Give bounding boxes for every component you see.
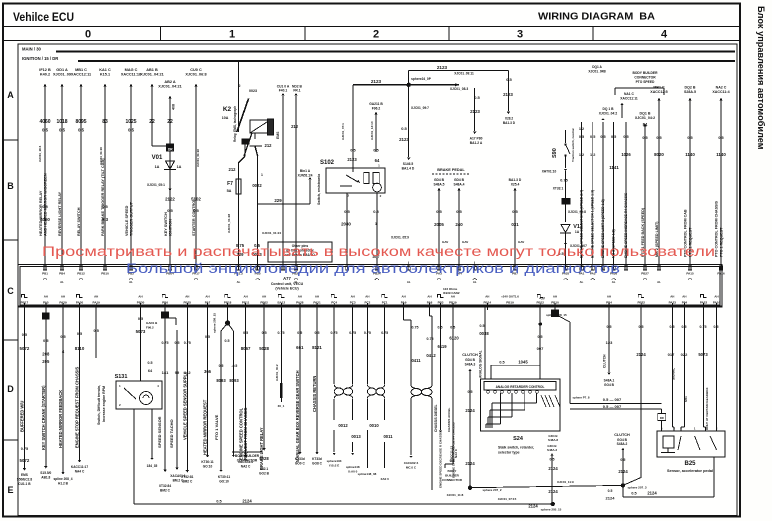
svg-text:B: B [7,181,14,191]
svg-text:CU0 C: CU0 C [190,68,202,72]
svg-text:2123: 2123 [371,79,382,84]
svg-text:XJC01_01:28: XJC01_01:28 [227,214,231,233]
svg-text:1140: 1140 [685,152,695,157]
svg-text:Stalk switch, retarder,: Stalk switch, retarder, [498,446,534,450]
svg-text:2123: 2123 [399,137,409,142]
svg-text:141: 141 [162,370,169,375]
svg-text:FR.1: FR.1 [293,89,300,93]
svg-text:CLUTCH: CLUTCH [462,353,478,357]
svg-text:XJC01_01:16: XJC01_01:16 [99,147,103,165]
svg-text:CONNECTOR: CONNECTOR [442,478,463,482]
svg-text:0.75: 0.75 [21,447,28,451]
svg-text:64: 64 [375,158,380,163]
svg-text:P84: P84 [682,301,688,305]
svg-text:Блок управления автомобилем: Блок управления автомобилем [756,6,766,150]
svg-text:VEHICLE SPEED: VEHICLE SPEED [125,205,129,236]
svg-text:SPEED SENSOR: SPEED SENSOR [157,416,162,448]
svg-text:0.5: 0.5 [216,500,221,504]
svg-text:sphere P7_8: sphere P7_8 [572,396,589,400]
svg-text:XA0 0: XA0 0 [381,477,390,481]
svg-text:4: 4 [661,29,668,41]
svg-text:PC4: PC4 [331,301,337,305]
svg-text:1045: 1045 [518,360,528,365]
svg-text:GO2 B: GO2 B [259,472,270,476]
svg-text:HEATED MIRROR FEEDBACK: HEATED MIRROR FEEDBACK [58,390,63,448]
svg-text:1A: 1A [155,165,160,169]
svg-text:BUILDER: BUILDER [445,474,460,478]
svg-text:S24: S24 [513,436,524,442]
svg-text:PB19: PB19 [449,301,457,305]
svg-text:PA16: PA16 [717,272,725,276]
svg-text:spline 208_4: spline 208_4 [54,477,73,481]
svg-text:AH: AH [138,295,142,299]
svg-text:REVERSE LIGHT RELAY: REVERSE LIGHT RELAY [58,191,62,236]
svg-text:0.5: 0.5 [22,333,27,337]
svg-text:MAIN / 30: MAIN / 30 [22,47,42,52]
svg-text:KT30:11: KT30:11 [218,475,230,479]
svg-text:A17 P80: A17 P80 [470,137,483,141]
svg-text:0.5: 0.5 [718,136,723,140]
svg-text:GD4 B: GD4 B [454,178,465,182]
svg-text:0.5: 0.5 [687,136,692,140]
svg-text:10A: 10A [222,116,229,120]
svg-text:spline148_08: spline148_08 [358,472,377,476]
svg-text:0.75: 0.75 [381,331,388,335]
svg-text:Bin1 A: Bin1 A [300,169,311,173]
svg-text:0.5: 0.5 [480,324,485,328]
svg-text:PC3: PC3 [350,301,356,305]
svg-text:0.5: 0.5 [42,128,48,133]
svg-text:DQ 1 B: DQ 1 B [603,107,615,111]
svg-text:PA22: PA22 [700,301,708,305]
svg-text:2124: 2124 [548,466,558,471]
svg-text:S48A.4: S48A.4 [454,183,465,187]
svg-text:2124: 2124 [242,499,252,504]
svg-text:EMS: EMS [21,473,28,477]
svg-text:AH: AH [185,295,189,299]
svg-text:PTO 1 VALVE: PTO 1 VALVE [214,414,219,440]
svg-text:BA1.4 D: BA1.4 D [402,167,415,171]
svg-text:0.5: 0.5 [550,458,555,462]
svg-text:AH: AH [670,295,674,299]
svg-text:1 2: 1 2 [579,153,584,157]
svg-text:GO8 C: GO8 C [312,462,323,466]
svg-text:XJC01_0F.2: XJC01_0F.2 [275,364,279,381]
svg-text:0.75: 0.75 [349,331,356,335]
svg-text:F40.1: F40.1 [279,89,288,93]
svg-text:0.5: 0.5 [401,126,407,131]
svg-text:1026: 1026 [621,152,631,157]
svg-text:S48A.2: S48A.2 [617,442,628,446]
svg-text:KT33d: KT33d [312,457,322,461]
svg-text:2: 2 [373,29,379,41]
svg-text:0.5: 0.5 [128,128,134,133]
svg-text:0022: 0022 [252,183,262,188]
svg-text:0.5: 0.5 [512,209,518,214]
svg-text:0411: 0411 [411,358,421,363]
svg-text:XJN51:24: XJN51:24 [298,174,313,178]
svg-text:031: 031 [511,222,519,227]
svg-text:GO:10: GO:10 [203,465,213,469]
svg-text:0.5 — 007: 0.5 — 007 [603,397,622,402]
svg-text:BA12: BA12 [277,301,285,305]
svg-text:PA15: PA15 [686,272,694,276]
svg-text:XHT01:10: XHT01:10 [542,170,557,174]
svg-text:XJC01_11:9: XJC01_11:9 [557,480,574,484]
svg-text:GO:10: GO:10 [219,480,229,484]
svg-text:A77: A77 [283,276,291,281]
svg-text:S146.5: S146.5 [403,162,414,166]
svg-text:0.5: 0.5 [611,135,616,139]
svg-text:BRAKE LIGHT RELAY: BRAKE LIGHT RELAY [259,427,264,470]
svg-text:PB11: PB11 [242,301,250,305]
svg-text:AL: AL [657,280,661,284]
svg-text:0.5: 0.5 [436,209,442,214]
svg-text:5028: 5028 [259,346,269,351]
svg-text:0.5: 0.5 [608,489,613,493]
svg-text:PA28: PA28 [296,301,304,305]
svg-text:PB4: PB4 [606,301,612,305]
svg-text:5A: 5A [227,189,232,193]
svg-text:S131: S131 [115,374,128,380]
svg-text:K40.2: K40.2 [40,73,50,77]
svg-text:-0.5: -0.5 [231,364,237,368]
svg-text:XJC01_04:21: XJC01_04:21 [158,85,181,89]
svg-text:PB14: PB14 [484,301,492,305]
svg-text:ENGINE STOP REQUEST FROM CHASS: ENGINE STOP REQUEST FROM CHASSIS [75,366,80,448]
svg-text:AH: AH [262,295,266,299]
svg-text:212: 212 [291,124,299,129]
svg-text:BA1.3 D: BA1.3 D [503,121,516,125]
svg-text:AH: AH [682,295,686,299]
svg-text:0.5: 0.5 [175,341,180,345]
svg-text:XJC01_05:9: XJC01_05:9 [391,236,409,240]
svg-text:AH: AH [553,295,557,299]
svg-text:BODY BUILDER: BODY BUILDER [632,71,658,75]
svg-text:AL: AL [580,280,584,284]
svg-text:DQ2 B: DQ2 B [685,85,696,89]
svg-text:PB10: PB10 [101,272,109,276]
svg-text:XJC01_09: XJC01_09 [53,73,71,77]
svg-text:VEHICLE SPEED SENSOR SUPPLY: VEHICLE SPEED SENSOR SUPPLY [182,371,187,440]
svg-text:5072: 5072 [20,458,30,463]
svg-text:0.5: 0.5 [344,209,350,214]
svg-text:PB22: PB22 [637,301,645,305]
svg-text:0412: 0412 [426,353,436,358]
svg-text:PTO CONTROL FROM CHASSIS: PTO CONTROL FROM CHASSIS [715,200,719,257]
svg-text:CU1.1 B: CU1.1 B [18,482,31,486]
svg-text:Switch, resistromia: Switch, resistromia [317,174,321,205]
svg-text:184_35: 184_35 [147,464,158,468]
svg-text:+5V: +5V [539,297,546,301]
svg-text:XJC01_08.3: XJC01_08.3 [450,87,468,91]
svg-text:2123: 2123 [503,92,513,97]
svg-text:PB12: PB12 [77,272,85,276]
svg-text:Большой энциклопедии для автоэ: Большой энциклопедии для автоэлектриков … [126,261,620,276]
svg-text:MB1 C: MB1 C [75,68,87,72]
svg-text:0013: 0013 [351,434,361,439]
svg-text:NA1 C: NA1 C [624,92,635,96]
svg-text:AH: AH [351,295,355,299]
svg-text:PB10: PB10 [551,301,559,305]
svg-text:2123: 2123 [437,65,448,70]
svg-text:BM2 C: BM2 C [160,489,171,493]
svg-text:PARK BRAKE TRIGGER RELAY (TILT: PARK BRAKE TRIGGER RELAY (TILT CAB) [101,158,105,236]
svg-text:0.75: 0.75 [364,331,371,335]
svg-text:0: 0 [85,29,91,41]
svg-text:F96.2: F96.2 [146,326,154,330]
svg-text:2124: 2124 [548,489,558,494]
svg-text:RELAY SWITCH: RELAY SWITCH [77,207,81,236]
svg-text:0011: 0011 [383,434,393,439]
svg-text:0.5: 0.5 [590,135,595,139]
svg-text:AB1 B: AB1 B [146,68,158,72]
svg-text:AL: AL [129,280,133,284]
svg-text:sphere 207_3: sphere 207_3 [627,486,646,490]
svg-text:0.75: 0.75 [427,337,434,341]
svg-text:PA30: PA30 [76,301,84,305]
svg-text:AB2 A: AB2 A [164,80,176,84]
svg-text:0.5: 0.5 [243,331,248,335]
svg-text:AH: AH [451,295,455,299]
svg-text:X28.2: X28.2 [505,117,514,121]
svg-text:99: 99 [175,370,180,375]
svg-text:30_1: 30_1 [278,404,285,408]
svg-text:XJC01_04:2: XJC01_04:2 [599,112,618,116]
svg-text:PA19: PA19 [93,301,101,305]
svg-text:Increase engine RPM: Increase engine RPM [102,386,106,422]
svg-text:6119: 6119 [437,344,447,349]
svg-text:AB1.8: AB1.8 [41,476,50,480]
svg-text:0.5: 0.5 [468,390,473,394]
svg-text:NA2 C: NA2 C [716,85,727,89]
svg-text:XACH02:4: XACH02:4 [404,461,419,465]
svg-text:AL: AL [294,280,298,284]
svg-text:2124: 2124 [528,504,538,509]
svg-text:C: C [7,286,14,296]
svg-text:AL: AL [60,280,64,284]
svg-text:PB17: PB17 [21,301,29,305]
svg-text:ANALOG RETARDER CONTROL: ANALOG RETARDER CONTROL [496,385,545,389]
svg-text:0.5: 0.5 [642,136,647,140]
svg-text:AH: AH [402,295,406,299]
svg-text:sphere24_0P: sphere24_0P [411,77,432,81]
svg-text:0.5: 0.5 [639,325,644,329]
svg-text:0.5: 0.5 [438,326,443,330]
svg-text:E: E [7,485,13,495]
svg-text:2124: 2124 [618,469,628,474]
svg-text:S90: S90 [552,148,558,158]
svg-text:DR: DR [168,148,173,152]
svg-text:EMS: EMS [276,131,280,139]
svg-text:CHASSIS ACCEL: CHASSIS ACCEL [447,407,451,432]
svg-text:sphere 209_15: sphere 209_15 [213,313,217,333]
svg-text:0.5: 0.5 [315,331,320,335]
svg-text:022: 022 [681,352,688,357]
svg-text:205: 205 [42,359,50,364]
svg-text:5028: 5028 [259,456,269,461]
svg-text:S102: S102 [320,160,335,166]
svg-text:0.75: 0.75 [412,326,419,330]
svg-text:Traction switch, neutral: Traction switch, neutral [571,128,575,162]
svg-text:PB12: PB12 [536,301,544,305]
svg-text:PA8: PA8 [427,301,433,305]
svg-text:PB6: PB6 [162,301,168,305]
svg-text:XJC01_13:10: XJC01_13:10 [370,121,374,140]
svg-text:PC1: PC1 [382,301,388,305]
svg-text:017: 017 [668,352,675,357]
svg-text:(Vehicle ECU): (Vehicle ECU) [275,287,299,291]
svg-text:XACC11:4: XACC11:4 [712,90,729,94]
svg-text:MANUAL GEAR BOX REVERSE GEAR S: MANUAL GEAR BOX REVERSE GEAR SWITCH [295,370,300,462]
svg-text:0038: 0038 [479,331,489,336]
svg-text:V01: V01 [152,155,163,161]
svg-text:PB1: PB1 [42,272,48,276]
svg-text:2124: 2124 [465,408,475,413]
svg-text:0010: 0010 [369,423,379,428]
svg-text:0.5: 0.5 [102,204,108,209]
svg-text:0.5: 0.5 [474,95,480,100]
svg-text:0.5: 0.5 [225,339,230,343]
svg-text:D: D [7,384,14,394]
svg-text:X25.4: X25.4 [511,183,520,187]
svg-text:XJC01_07:1: XJC01_07:1 [341,123,345,140]
svg-text:PC2: PC2 [364,301,370,305]
svg-text:PB18: PB18 [224,301,232,305]
svg-text:STARTER CONTROL: STARTER CONTROL [192,198,196,236]
svg-text:0.5: 0.5 [373,209,379,214]
svg-text:XT32:81: XT32:81 [181,475,193,479]
svg-text:XJC01_09:11: XJC01_09:11 [454,72,474,76]
svg-text:GO0 C: GO0 C [295,462,306,466]
svg-text:sphere 205_15: sphere 205_15 [541,508,562,512]
svg-text:661: 661 [296,345,304,350]
svg-text:0023: 0023 [249,89,257,93]
svg-text:XJC01_04:21: XJC01_04:21 [140,73,163,77]
svg-text:MAG C: MAG C [125,68,138,72]
svg-text:PB25: PB25 [184,301,192,305]
svg-text:KEY SWITCH CRANK (STARTER): KEY SWITCH CRANK (STARTER) [41,385,46,450]
svg-text:PA29: PA29 [59,301,67,305]
svg-text:AH: AH [244,295,248,299]
svg-text:8067: 8067 [241,346,251,351]
svg-text:1141: 1141 [609,165,619,170]
svg-text:0.5: 0.5 [59,128,65,133]
svg-text:IGNITION / 15 / DR: IGNITION / 15 / DR [22,56,58,61]
svg-text:0.5: 0.5 [262,331,267,335]
svg-text:0.5: 0.5 [670,325,675,329]
svg-text:212: 212 [229,167,237,172]
svg-text:PA23: PA23 [669,301,677,305]
svg-text:AL: AL [612,280,616,284]
svg-text:8093: 8093 [229,378,239,383]
svg-text:B25: B25 [684,461,696,467]
svg-text:KACC11:17: KACC11:17 [71,465,88,469]
svg-text:AH: AH [44,295,48,299]
svg-text:ONLY AT CERTAIN GEARBOX: ONLY AT CERTAIN GEARBOX [705,388,709,430]
svg-text:8110: 8110 [75,346,85,351]
svg-text:IF12 B: IF12 B [39,68,51,72]
svg-text:6120: 6120 [449,336,459,341]
svg-text:0.5: 0.5 [600,135,605,139]
svg-text:0.5: 0.5 [499,361,504,365]
svg-text:KA1 C: KA1 C [99,68,111,72]
svg-text:PB19: PB19 [506,301,514,305]
svg-text:XJC01_01:18: XJC01_01:18 [196,149,200,167]
svg-text:GD4 B: GD4 B [465,358,475,362]
svg-text:S48A.5: S48A.5 [434,183,445,187]
svg-text:XACC12:5: XACC12:5 [650,90,667,94]
svg-text:XT33:1: XT33:1 [553,187,564,191]
svg-text:5073: 5073 [136,329,146,334]
svg-text:F7: F7 [227,181,233,187]
svg-text:XJC01_04:2: XJC01_04:2 [635,116,655,120]
svg-text:CONNECTOR: CONNECTOR [237,459,258,463]
svg-text:HEATED MIRROR RELAY: HEATED MIRROR RELAY [39,190,43,236]
svg-text:2124: 2124 [465,461,475,466]
svg-text:sphere193: sphere193 [327,459,342,463]
svg-text:0.5: 0.5 [148,361,153,365]
svg-text:GAD1 B: GAD1 B [146,321,158,325]
svg-text:0.5: 0.5 [682,325,687,329]
svg-text:K15.1: K15.1 [100,73,110,77]
svg-text:1: 1 [261,173,263,177]
svg-text:S48A.1: S48A.1 [604,379,615,383]
svg-text:1140: 1140 [716,152,726,157]
svg-text:0.5: 0.5 [656,136,661,140]
svg-text:MC.0 C: MC.0 C [406,466,417,470]
svg-text:3: 3 [517,29,523,41]
svg-text:2123: 2123 [470,109,480,114]
svg-text:TRIGGER OUTPUT: TRIGGER OUTPUT [129,201,133,236]
svg-text:0.5: 0.5 [138,317,143,321]
svg-text:CHASSIS DIESEL: CHASSIS DIESEL [434,405,438,432]
svg-text:0012: 0012 [338,423,348,428]
svg-text:0.5: 0.5 [167,208,173,213]
svg-text:AH: AH [607,295,611,299]
svg-text:XJC01_18:4: XJC01_18:4 [38,145,42,162]
svg-text:4060: 4060 [40,217,50,222]
svg-text:8095: 8095 [75,119,86,125]
svg-text:AH: AH [365,295,369,299]
svg-text:XJC01_09:7: XJC01_09:7 [411,106,429,110]
svg-text:AH: AH [485,295,489,299]
svg-text:SIGNAL: SIGNAL [672,368,676,380]
svg-text:2005: 2005 [434,222,444,227]
svg-text:AL: AL [473,280,477,284]
svg-text:PA7: PA7 [205,301,211,305]
svg-text:NA4 C: NA4 C [75,470,85,474]
svg-text:8020: 8020 [654,152,664,157]
svg-text:0.75: 0.75 [560,179,567,183]
svg-text:CHASSIS RETURN: CHASSIS RETURN [312,376,317,412]
svg-text:1025: 1025 [125,119,136,125]
svg-text:spline148: spline148 [346,465,360,469]
svg-text:1A: 1A [177,165,182,169]
svg-text:2124: 2124 [636,352,646,357]
svg-text:0.5: 0.5 [538,335,543,339]
svg-text:ANALOG SIGNAL: ANALOG SIGNAL [479,350,483,378]
svg-text:K2: K2 [223,106,232,113]
svg-text:Просматривать и распечатывать: Просматривать и распечатывать в высоком … [42,244,715,259]
svg-text:XJC01_06:8: XJC01_06:8 [185,73,206,77]
svg-text:0.75: 0.75 [331,331,338,335]
svg-text:0.75: 0.75 [184,341,191,345]
svg-text:0.5: 0.5 [579,135,584,139]
svg-text:XJC01_11:8: XJC01_11:8 [447,493,464,497]
svg-text:0.5: 0.5 [219,364,224,368]
svg-text:Vehilce ECU: Vehilce ECU [13,12,74,24]
